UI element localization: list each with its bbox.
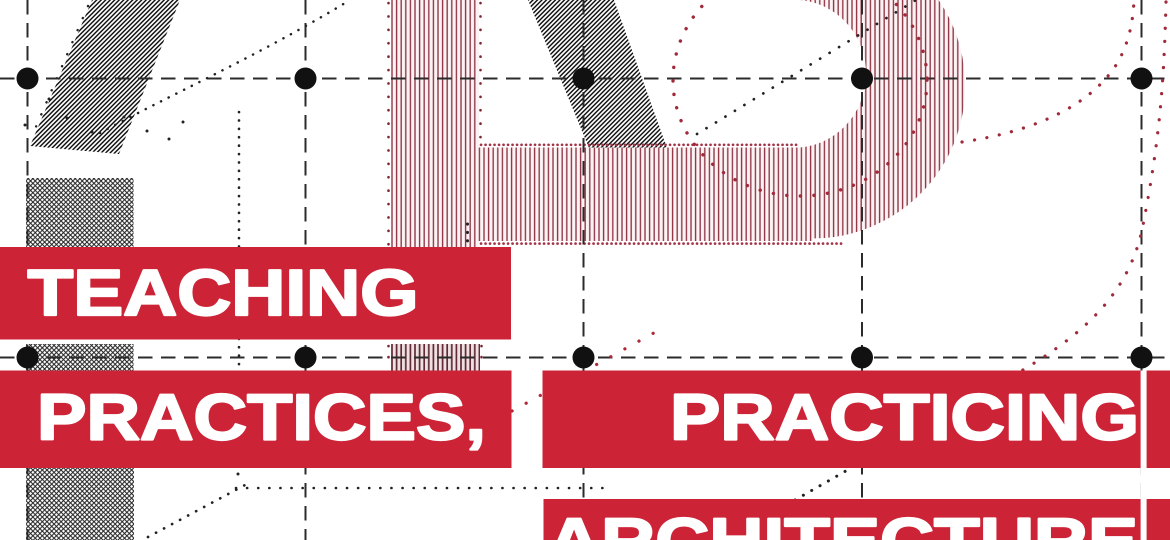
svg-text:ARCHITECTURE: ARCHITECTURE xyxy=(547,505,1138,540)
svg-text:PRACTICING: PRACTICING xyxy=(670,381,1139,454)
svg-text:TEACHING: TEACHING xyxy=(28,256,419,329)
svg-text:PRACTICES,: PRACTICES, xyxy=(37,381,486,454)
